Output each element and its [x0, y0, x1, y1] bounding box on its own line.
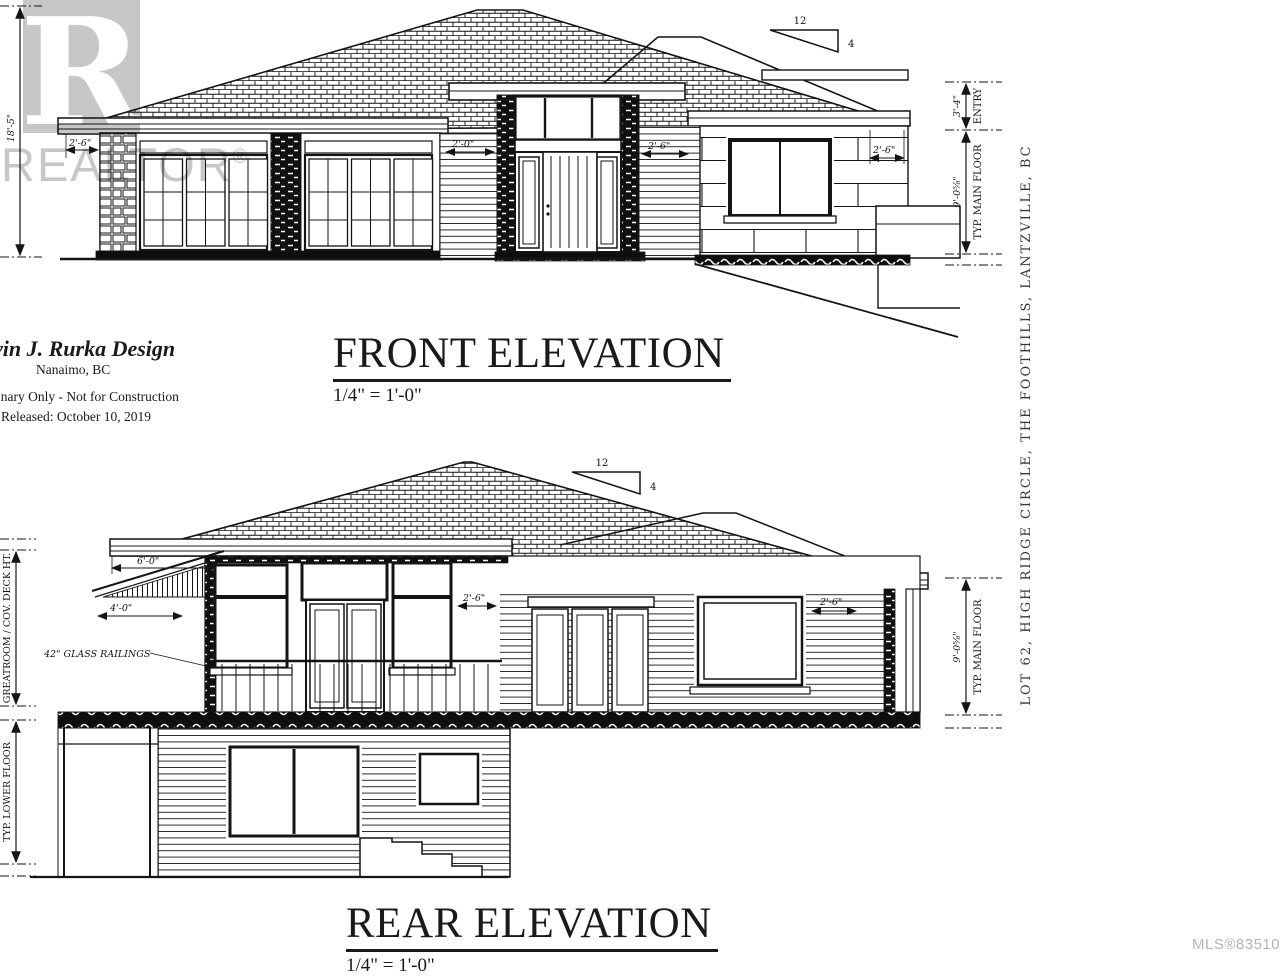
dim-rear-main-height: 9'-0⅝" [952, 631, 963, 663]
front-entry [495, 95, 645, 261]
label-lower-floor: TYP. LOWER FLOOR [2, 741, 13, 842]
lot-address-note: LOT 62, HIGH RIDGE CIRCLE, THE FOOTHILLS… [1019, 144, 1034, 705]
rear-elevation-title-block: REAR ELEVATION 1/4" = 1'-0" [346, 899, 718, 977]
rear-slope-indicator [572, 472, 640, 494]
registered-mark: ® [233, 146, 250, 168]
realtor-watermark-text: REALTOR® [1, 137, 249, 192]
label-greatroom-height: GREATROOM / COV. DECK HT. [2, 553, 13, 703]
rear-slope-rise: 4 [650, 482, 656, 493]
dim-deck-depth: 4'-0" [109, 603, 132, 614]
glass-railing-balusters [208, 664, 488, 711]
realtor-logo-letter: R [20, 2, 143, 132]
mls-number: MLS®835108 [1192, 936, 1280, 953]
designer-name: vin J. Rurka Design [0, 336, 175, 362]
front-grade-line [695, 264, 958, 337]
front-slope-run: 12 [794, 16, 807, 27]
dim-entry-left: 2'-0" [451, 139, 474, 150]
realtor-brand: REALTOR [1, 138, 233, 191]
front-elevation-title: FRONT ELEVATION [333, 329, 731, 382]
deck-rim-band [58, 712, 920, 728]
dim-front-main-height: 9'-0⅝" [952, 176, 963, 208]
rear-elevation-drawing [30, 462, 928, 877]
rear-lower-floor [30, 728, 510, 877]
dim-rear-center-overhang: 2'-6" [462, 593, 485, 604]
rear-main-floor [205, 556, 920, 712]
dim-eave-depth: 6'-0" [137, 556, 159, 567]
realtor-logo-watermark: R [23, 0, 140, 133]
rear-elevation-title: REAR ELEVATION [346, 899, 718, 952]
blueprint-page: { "watermark": { "logo_letter": "R", "br… [0, 0, 1280, 960]
disclaimer-note: inary Only - Not for Construction [0, 389, 179, 405]
front-elevation-title-block: FRONT ELEVATION 1/4" = 1'-0" [333, 329, 731, 407]
front-elevation-scale: 1/4" = 1'-0" [333, 385, 731, 407]
front-slope-indicator [770, 30, 838, 52]
dim-rear-right-overhang: 2'-6" [819, 597, 842, 608]
label-entry: ENTRY [973, 87, 984, 124]
label-glass-railings: 42" GLASS RAILINGS [43, 649, 151, 660]
label-front-main-floor: TYP. MAIN FLOOR [973, 144, 984, 240]
label-rear-main-floor: TYP. MAIN FLOOR [973, 599, 984, 695]
rear-elevation-scale: 1/4" = 1'-0" [346, 955, 718, 977]
dim-right-overhang: 2'-6" [872, 145, 895, 156]
front-right-wing [695, 126, 960, 337]
release-date: Released: October 10, 2019 [1, 409, 151, 425]
dim-entry-height: 3'-4" [952, 95, 963, 117]
dim-entry-right: 2'-6" [647, 141, 670, 152]
front-slope-rise: 4 [848, 39, 854, 50]
rear-slope-run: 12 [596, 458, 609, 469]
designer-city: Nanaimo, BC [36, 362, 110, 378]
